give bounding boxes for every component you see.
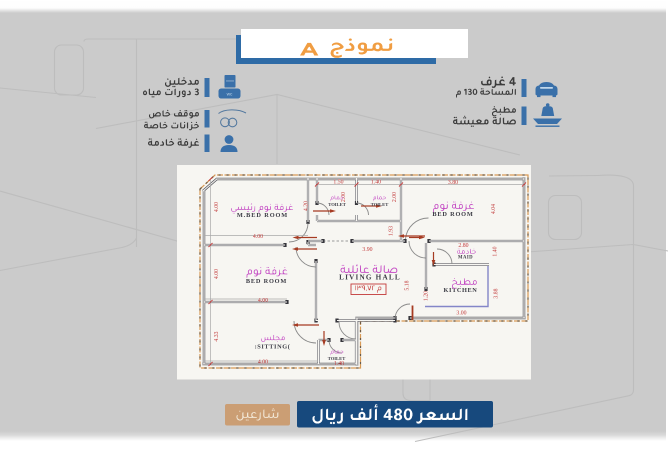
- svg-text:MAID: MAID: [458, 256, 473, 261]
- svg-text::SITTING(: :SITTING(: [255, 344, 291, 351]
- svg-text:BED ROOM: BED ROOM: [246, 278, 287, 285]
- svg-text:1.50: 1.50: [333, 180, 343, 186]
- svg-text:1.40: 1.40: [493, 246, 499, 256]
- svg-text:2.80: 2.80: [458, 243, 468, 249]
- svg-text:1.40: 1.40: [334, 361, 344, 367]
- svg-text:5.18: 5.18: [405, 280, 411, 290]
- svg-text:3.88: 3.88: [494, 288, 500, 298]
- svg-text:KITCHEN: KITCHEN: [444, 287, 478, 294]
- svg-text:4.00: 4.00: [258, 298, 268, 304]
- svg-text:4.00: 4.00: [214, 202, 220, 212]
- svg-text:1.93: 1.93: [389, 226, 395, 236]
- svg-text:3.00: 3.00: [456, 311, 466, 317]
- svg-text:M.BED ROOM: M.BED ROOM: [237, 212, 288, 219]
- svg-text:BED ROOM: BED ROOM: [432, 211, 473, 218]
- svg-text:3.80: 3.80: [448, 180, 458, 186]
- svg-text:4.00: 4.00: [214, 269, 220, 279]
- svg-text:4.20: 4.20: [304, 201, 310, 211]
- svg-text:4.00: 4.00: [258, 360, 268, 366]
- svg-text:3.90: 3.90: [362, 247, 372, 253]
- svg-text:4.00: 4.00: [253, 234, 263, 240]
- svg-text:wc: wc: [227, 93, 233, 98]
- svg-text:4.33: 4.33: [214, 331, 220, 341]
- svg-text:LIVING HALL: LIVING HALL: [339, 274, 401, 282]
- svg-text:2.00: 2.00: [392, 192, 398, 202]
- svg-text:1.20: 1.20: [424, 291, 430, 301]
- svg-text:4.04: 4.04: [491, 204, 497, 214]
- svg-text:1.40: 1.40: [371, 180, 381, 186]
- svg-text:TOILET: TOILET: [371, 202, 389, 207]
